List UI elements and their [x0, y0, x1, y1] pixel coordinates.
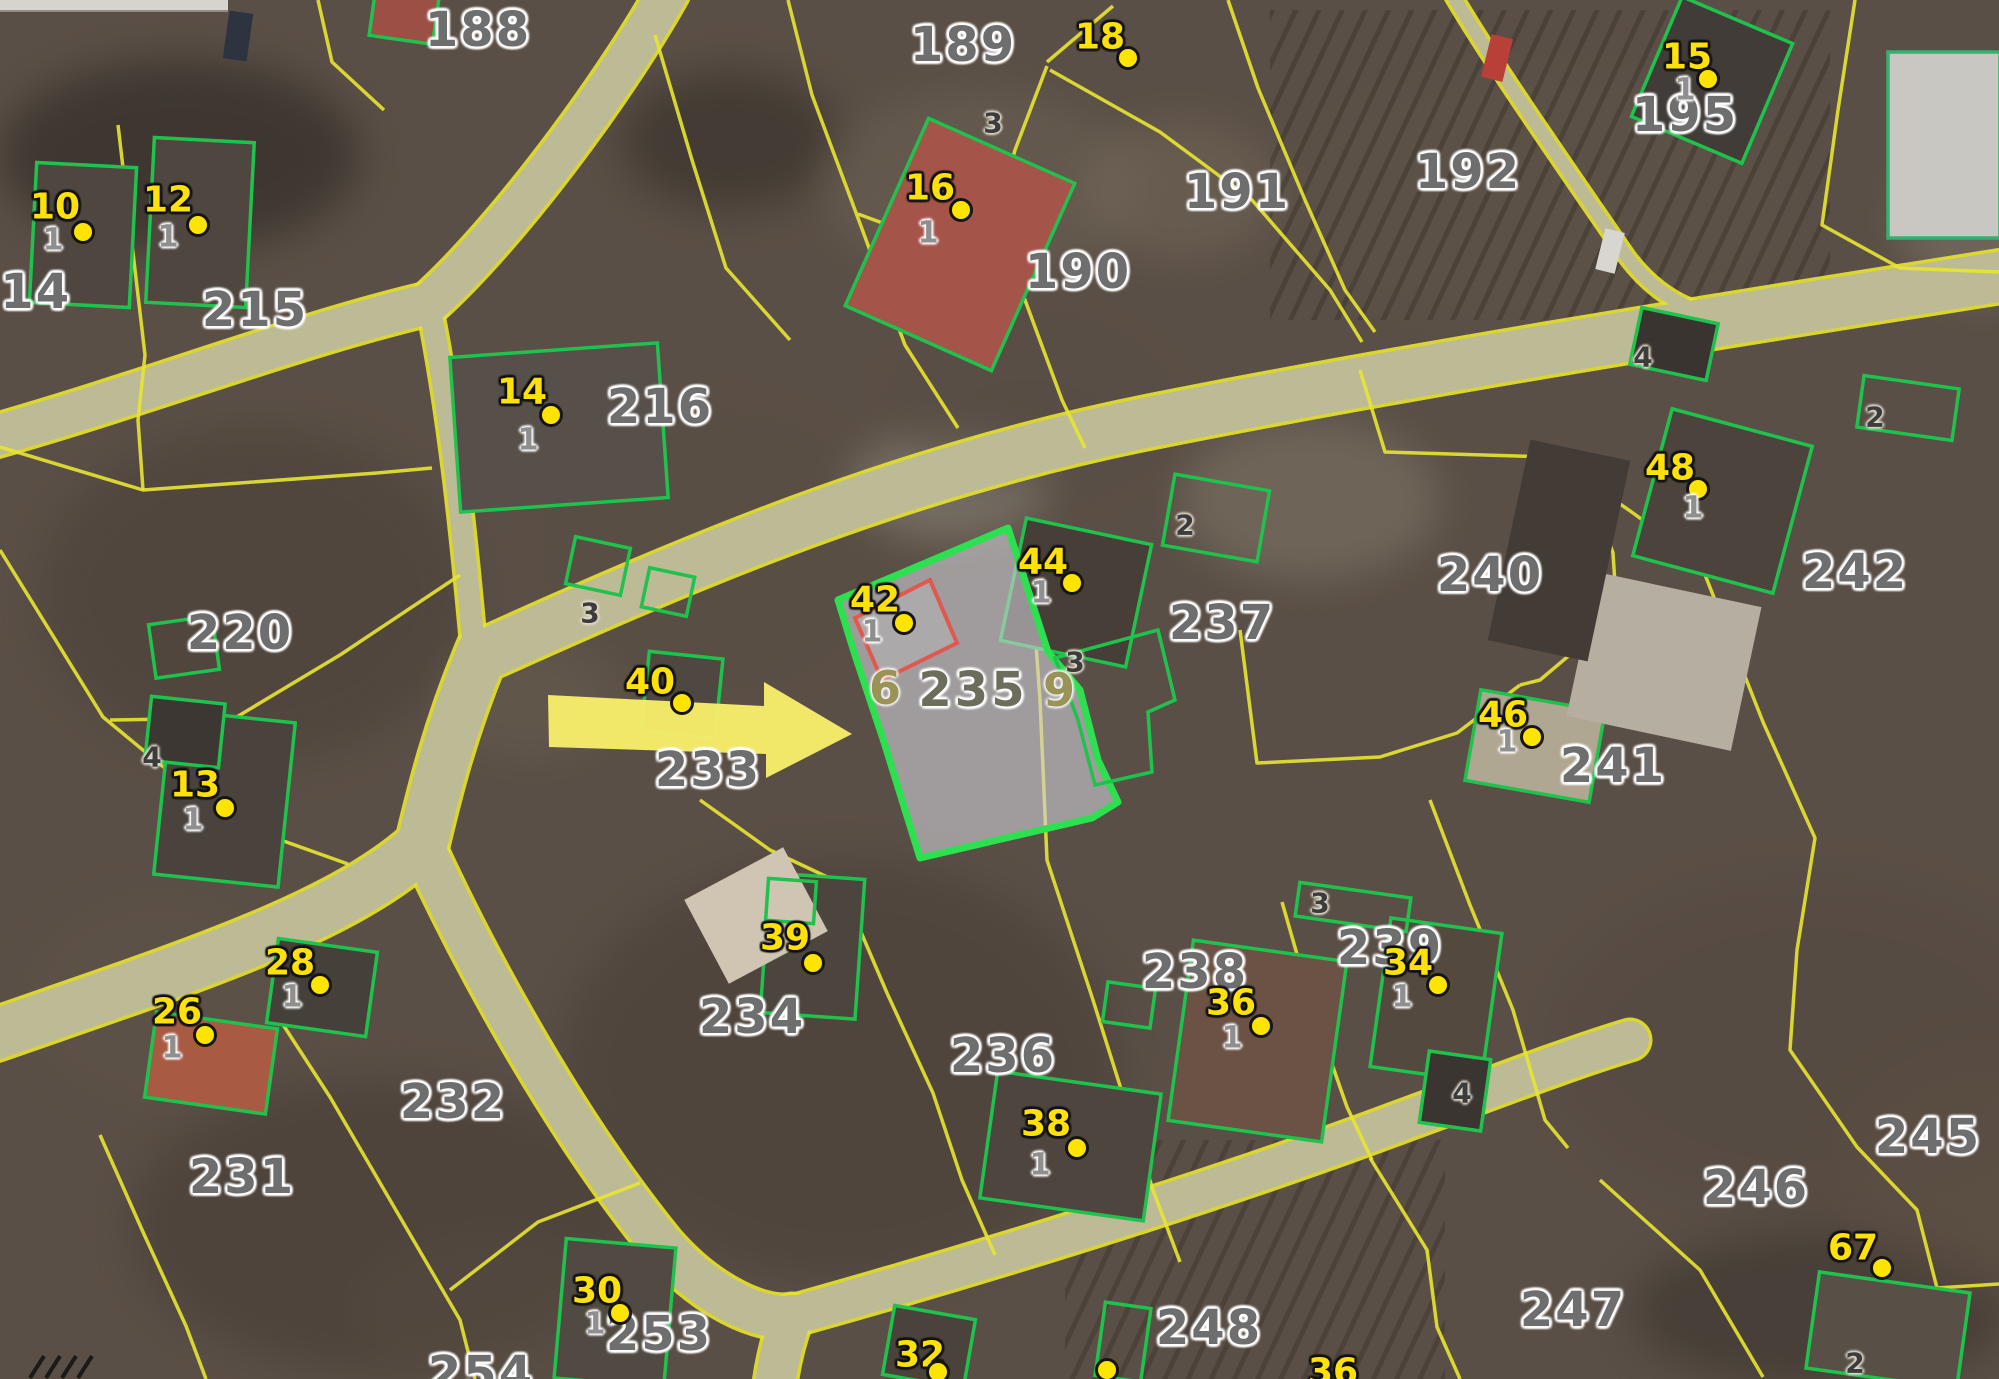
building	[1633, 409, 1812, 593]
point-marker-label: 28	[265, 943, 315, 984]
parcel-label: 237	[1169, 595, 1275, 651]
small-number-label: 4	[142, 741, 161, 774]
building	[1806, 1272, 1970, 1379]
parcel-label: 231	[189, 1149, 295, 1205]
point-marker-dot[interactable]	[213, 796, 237, 820]
parcel-label: 190	[1025, 244, 1131, 300]
unit-number-label: 1	[183, 803, 204, 838]
point-marker-label: 12	[143, 180, 193, 221]
point-marker-label: 10	[30, 187, 80, 228]
point-marker-dot[interactable]	[1520, 725, 1544, 749]
ui-strip-remnant	[0, 0, 228, 12]
unit-number-label: 1	[1497, 725, 1518, 760]
parcel-label: 247	[1520, 1282, 1626, 1338]
parcel-label: 254	[428, 1346, 534, 1379]
point-marker-label: 36	[1308, 1352, 1358, 1379]
parcel-label: 214	[0, 264, 71, 320]
building	[223, 11, 253, 62]
point-marker-dot[interactable]	[1116, 46, 1140, 70]
point-marker-dot[interactable]	[801, 951, 825, 975]
parcel-label: 232	[400, 1074, 506, 1130]
parcel-label: 241	[1560, 738, 1666, 794]
unit-number-label: 1	[1392, 980, 1413, 1015]
point-marker-label: 16	[905, 168, 955, 209]
point-marker-dot[interactable]	[539, 403, 563, 427]
unit-number-label: 1	[518, 423, 539, 458]
parcel-label: 248	[1156, 1300, 1262, 1356]
unit-number-label: 1	[918, 216, 939, 251]
unit-number-label: 1	[43, 223, 64, 258]
point-marker-dot[interactable]	[193, 1023, 217, 1047]
point-marker-dot[interactable]	[308, 973, 332, 997]
point-marker-dot[interactable]	[186, 213, 210, 237]
highlighted-parcel-ghost-digit: 6	[869, 661, 901, 715]
point-marker-label: 34	[1383, 943, 1433, 984]
parcel-label: 242	[1802, 544, 1908, 600]
parcel-label: 246	[1703, 1160, 1809, 1216]
parcel-label: 192	[1415, 144, 1521, 200]
point-marker-dot[interactable]	[1426, 973, 1450, 997]
point-marker-label: 14	[497, 372, 547, 413]
parcel-label: 233	[655, 742, 761, 798]
point-marker-label: 36	[1206, 983, 1256, 1024]
point-marker-dot[interactable]	[71, 220, 95, 244]
parcel-label: 216	[607, 379, 713, 435]
highlighted-parcel-ghost-digit: 9	[1043, 663, 1075, 717]
parcel-label: 236	[950, 1028, 1056, 1084]
point-marker-label: 13	[170, 765, 220, 806]
parcel-label: 215	[202, 282, 308, 338]
point-marker-dot[interactable]	[1095, 1358, 1119, 1379]
parcel-label: 191	[1184, 164, 1290, 220]
small-number-label: 2	[1865, 401, 1884, 434]
parcel-label: 240	[1437, 547, 1543, 603]
small-number-label: 2	[1845, 1347, 1864, 1379]
point-marker-dot[interactable]	[1249, 1014, 1273, 1038]
corner-hatch-marks	[30, 1356, 92, 1378]
point-marker-dot[interactable]	[670, 691, 694, 715]
point-marker-label: 39	[760, 918, 810, 959]
unit-number-label: 1	[1222, 1021, 1243, 1056]
point-marker-dot[interactable]	[1065, 1136, 1089, 1160]
point-marker-dot[interactable]	[1696, 67, 1720, 91]
unit-number-label: 1	[162, 1031, 183, 1066]
building	[1888, 52, 1999, 238]
unit-number-label: 1	[1030, 1148, 1051, 1183]
small-number-label: 3	[1310, 887, 1329, 920]
point-marker-dot[interactable]	[892, 611, 916, 635]
unit-number-label: 1	[158, 220, 179, 255]
parcel-label: 220	[187, 605, 293, 661]
cadastral-map-viewport[interactable]: 2142151881891901911921952162202332372402…	[0, 0, 1999, 1379]
unit-number-label: 1	[1675, 73, 1696, 108]
small-number-label: 2	[1175, 509, 1194, 542]
small-number-label: 3	[983, 107, 1002, 140]
point-marker-label: 38	[1021, 1104, 1071, 1145]
point-marker-dot[interactable]	[608, 1301, 632, 1325]
small-number-label: 4	[1452, 1077, 1471, 1110]
unit-number-label: 1	[585, 1307, 606, 1342]
point-marker-dot[interactable]	[949, 198, 973, 222]
parcel-label: 189	[910, 17, 1016, 73]
highlighted-parcel-label: 235	[918, 662, 1027, 718]
small-number-label: 3	[580, 597, 599, 630]
unit-number-label: 1	[1031, 576, 1052, 611]
point-marker-label: 26	[152, 992, 202, 1033]
small-number-label: 4	[1633, 341, 1652, 374]
unit-number-label: 1	[1683, 491, 1704, 526]
point-marker-dot[interactable]	[926, 1360, 950, 1379]
unit-number-label: 1	[862, 615, 883, 650]
point-marker-dot[interactable]	[1060, 571, 1084, 595]
point-marker-label: 40	[625, 662, 675, 703]
parcel-label: 245	[1875, 1109, 1981, 1165]
unit-number-label: 1	[282, 980, 303, 1015]
point-marker-dot[interactable]	[1870, 1256, 1894, 1280]
parcel-label: 234	[699, 989, 805, 1045]
parcel-label: 188	[425, 2, 531, 58]
